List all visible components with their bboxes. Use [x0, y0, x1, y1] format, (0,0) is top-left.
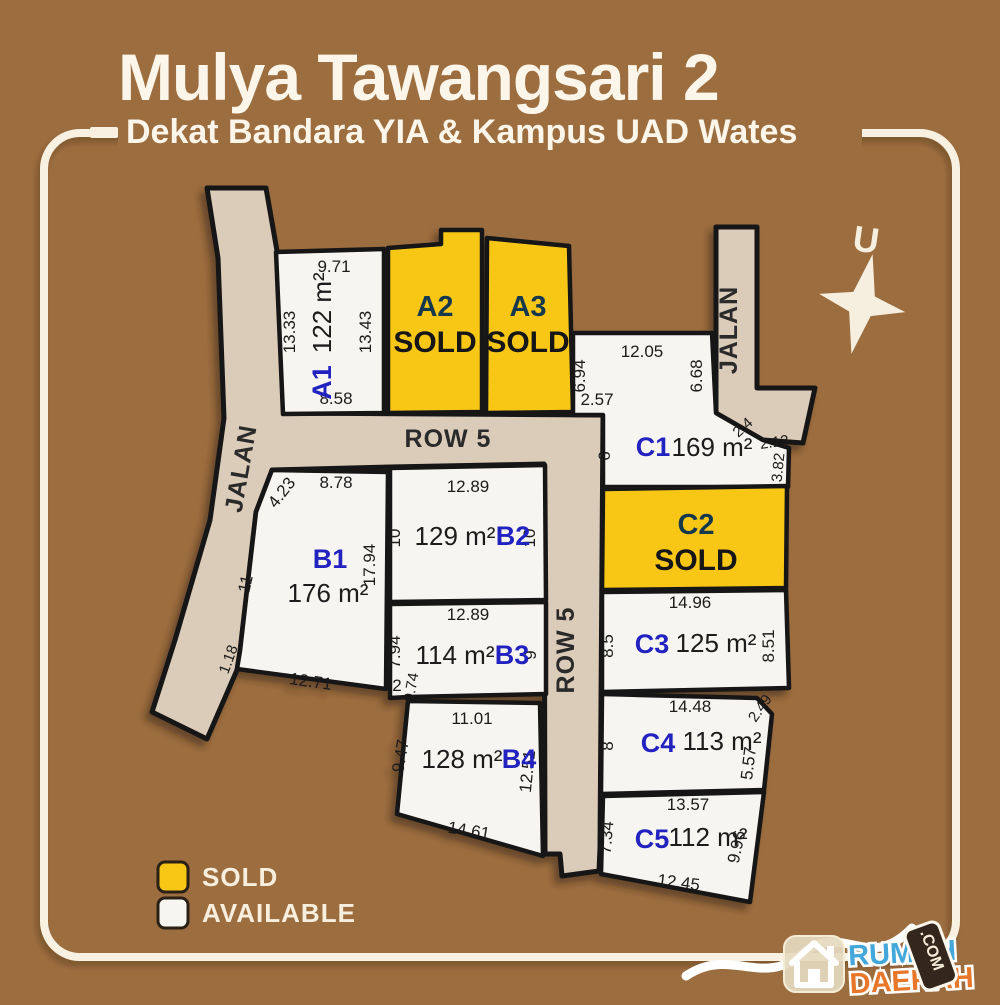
- site-plan-svg: Mulya Tawangsari 2 Dekat Bandara YIA & K…: [0, 0, 1000, 1000]
- plot-c2-status: SOLD: [654, 544, 737, 577]
- plot-a2: A2 SOLD: [388, 230, 482, 413]
- plot-b3-dim-left: 7.94: [385, 635, 404, 668]
- compass: U: [808, 217, 915, 363]
- plot-c5-dim-bottom: 12.45: [656, 871, 701, 895]
- plot-c3-dim-right: 8.51: [759, 629, 778, 662]
- plot-a1-id: A1: [307, 365, 337, 400]
- plot-b2-area: 129 m²: [415, 521, 496, 551]
- plot-a1-area: 122 m²: [307, 272, 337, 353]
- plot-c1-dim-top: 12.05: [621, 342, 664, 361]
- compass-north-label: U: [850, 217, 881, 261]
- plot-b3: 12.89 7.94 9 114 m² B3 2 0.74: [385, 602, 546, 703]
- compass-star-icon: [808, 245, 915, 363]
- plot-b1-dim-top: 8.78: [319, 473, 352, 492]
- plot-a3: A3 SOLD: [486, 238, 573, 413]
- plot-a1-dim-left: 13.33: [280, 311, 299, 354]
- logo-house-door: [808, 969, 820, 985]
- page-subtitle: Dekat Bandara YIA & Kampus UAD Wates: [126, 113, 797, 151]
- plot-a1: 9.71 13.33 13.43 8.58 A1122 m²: [276, 249, 384, 414]
- road-label-row5-vertical: ROW 5: [552, 607, 580, 694]
- plot-a2-id: A2: [416, 291, 453, 323]
- plot-b3-dim-top: 12.89: [447, 605, 490, 624]
- road-label-jalan-right: JALAN: [715, 286, 743, 374]
- subtitle-dash-left: [90, 127, 118, 138]
- plot-c5-id: C5: [635, 824, 670, 854]
- legend-sold-swatch: [158, 862, 188, 892]
- plot-a3-id: A3: [509, 291, 546, 323]
- plot-c5-dim-left: 7.34: [596, 820, 618, 855]
- road-label-row5-horizontal: ROW 5: [405, 425, 492, 453]
- plot-c1-dim-upper-right: 6.68: [687, 359, 706, 392]
- plot-c3: 14.96 8.5 8.51 C3 125 m²: [598, 590, 789, 692]
- plot-c1-area: 169 m²: [672, 432, 753, 462]
- legend: SOLD AVAILABLE: [158, 862, 356, 928]
- plot-b2: 12.89 10 10 129 m² B2: [385, 465, 546, 602]
- plot-c1-dim-left: 6: [595, 451, 614, 460]
- plot-a2-status: SOLD: [393, 326, 476, 359]
- plot-a1-dim-right: 13.43: [356, 311, 375, 354]
- plot-b3-area: 114 m²: [416, 640, 495, 670]
- plot-a3-status: SOLD: [486, 326, 569, 359]
- legend-available-swatch: [158, 898, 188, 928]
- plot-c1-dim-step: 2.57: [580, 390, 613, 409]
- plot-c4-dim-top: 14.48: [669, 697, 712, 716]
- plot-b4: 11.01 9.47 12.51 14.61 128 m² B4: [388, 701, 543, 856]
- plot-c5-area: 112 m²: [669, 822, 748, 852]
- plot-b4-area: 128 m²: [422, 744, 503, 774]
- legend-sold-label: SOLD: [202, 862, 278, 892]
- plot-a1-label: A1122 m²: [307, 272, 337, 400]
- plot-b3-dim-step-width: 2: [392, 676, 401, 695]
- plot-c3-area: 125 m²: [676, 628, 757, 658]
- plot-b2-dim-top: 12.89: [447, 477, 490, 496]
- legend-available-label: AVAILABLE: [202, 898, 356, 928]
- plot-c3-id: C3: [635, 629, 670, 659]
- plot-b4-dim-top: 11.01: [451, 709, 492, 728]
- plot-b2-id: B2: [496, 521, 531, 551]
- plot-b4-id: B4: [502, 744, 537, 774]
- plot-c1-dim-upper-left: 6.94: [570, 359, 589, 392]
- plot-b3-id: B3: [495, 640, 530, 670]
- plot-c2-id: C2: [677, 509, 714, 541]
- plot-b1-id: B1: [313, 544, 348, 574]
- plot-c4: 14.48 8 2.49 5.57 C4 113 m²: [598, 692, 776, 794]
- plot-c4-id: C4: [641, 728, 676, 758]
- flyer-page: Mulya Tawangsari 2 Dekat Bandara YIA & K…: [0, 0, 1000, 1000]
- plot-c4-area: 113 m²: [683, 726, 762, 756]
- plot-b1-area: 176 m²: [288, 578, 369, 608]
- plot-c1-dim-right-lower: 3.82: [769, 452, 789, 483]
- plot-c2: C2 SOLD: [602, 486, 787, 590]
- plot-c5-dim-top: 13.57: [667, 795, 710, 814]
- page-title: Mulya Tawangsari 2: [118, 40, 719, 114]
- plot-c3-dim-top: 14.96: [669, 593, 712, 612]
- plot-c4-dim-left: 8: [598, 741, 617, 750]
- plot-b2-dim-left: 10: [385, 529, 404, 548]
- plot-c1-id: C1: [636, 432, 671, 462]
- plot-c5: 13.57 7.34 9.96 12.45 C5 112 m²: [596, 792, 764, 902]
- plot-c3-dim-left: 8.5: [598, 634, 617, 658]
